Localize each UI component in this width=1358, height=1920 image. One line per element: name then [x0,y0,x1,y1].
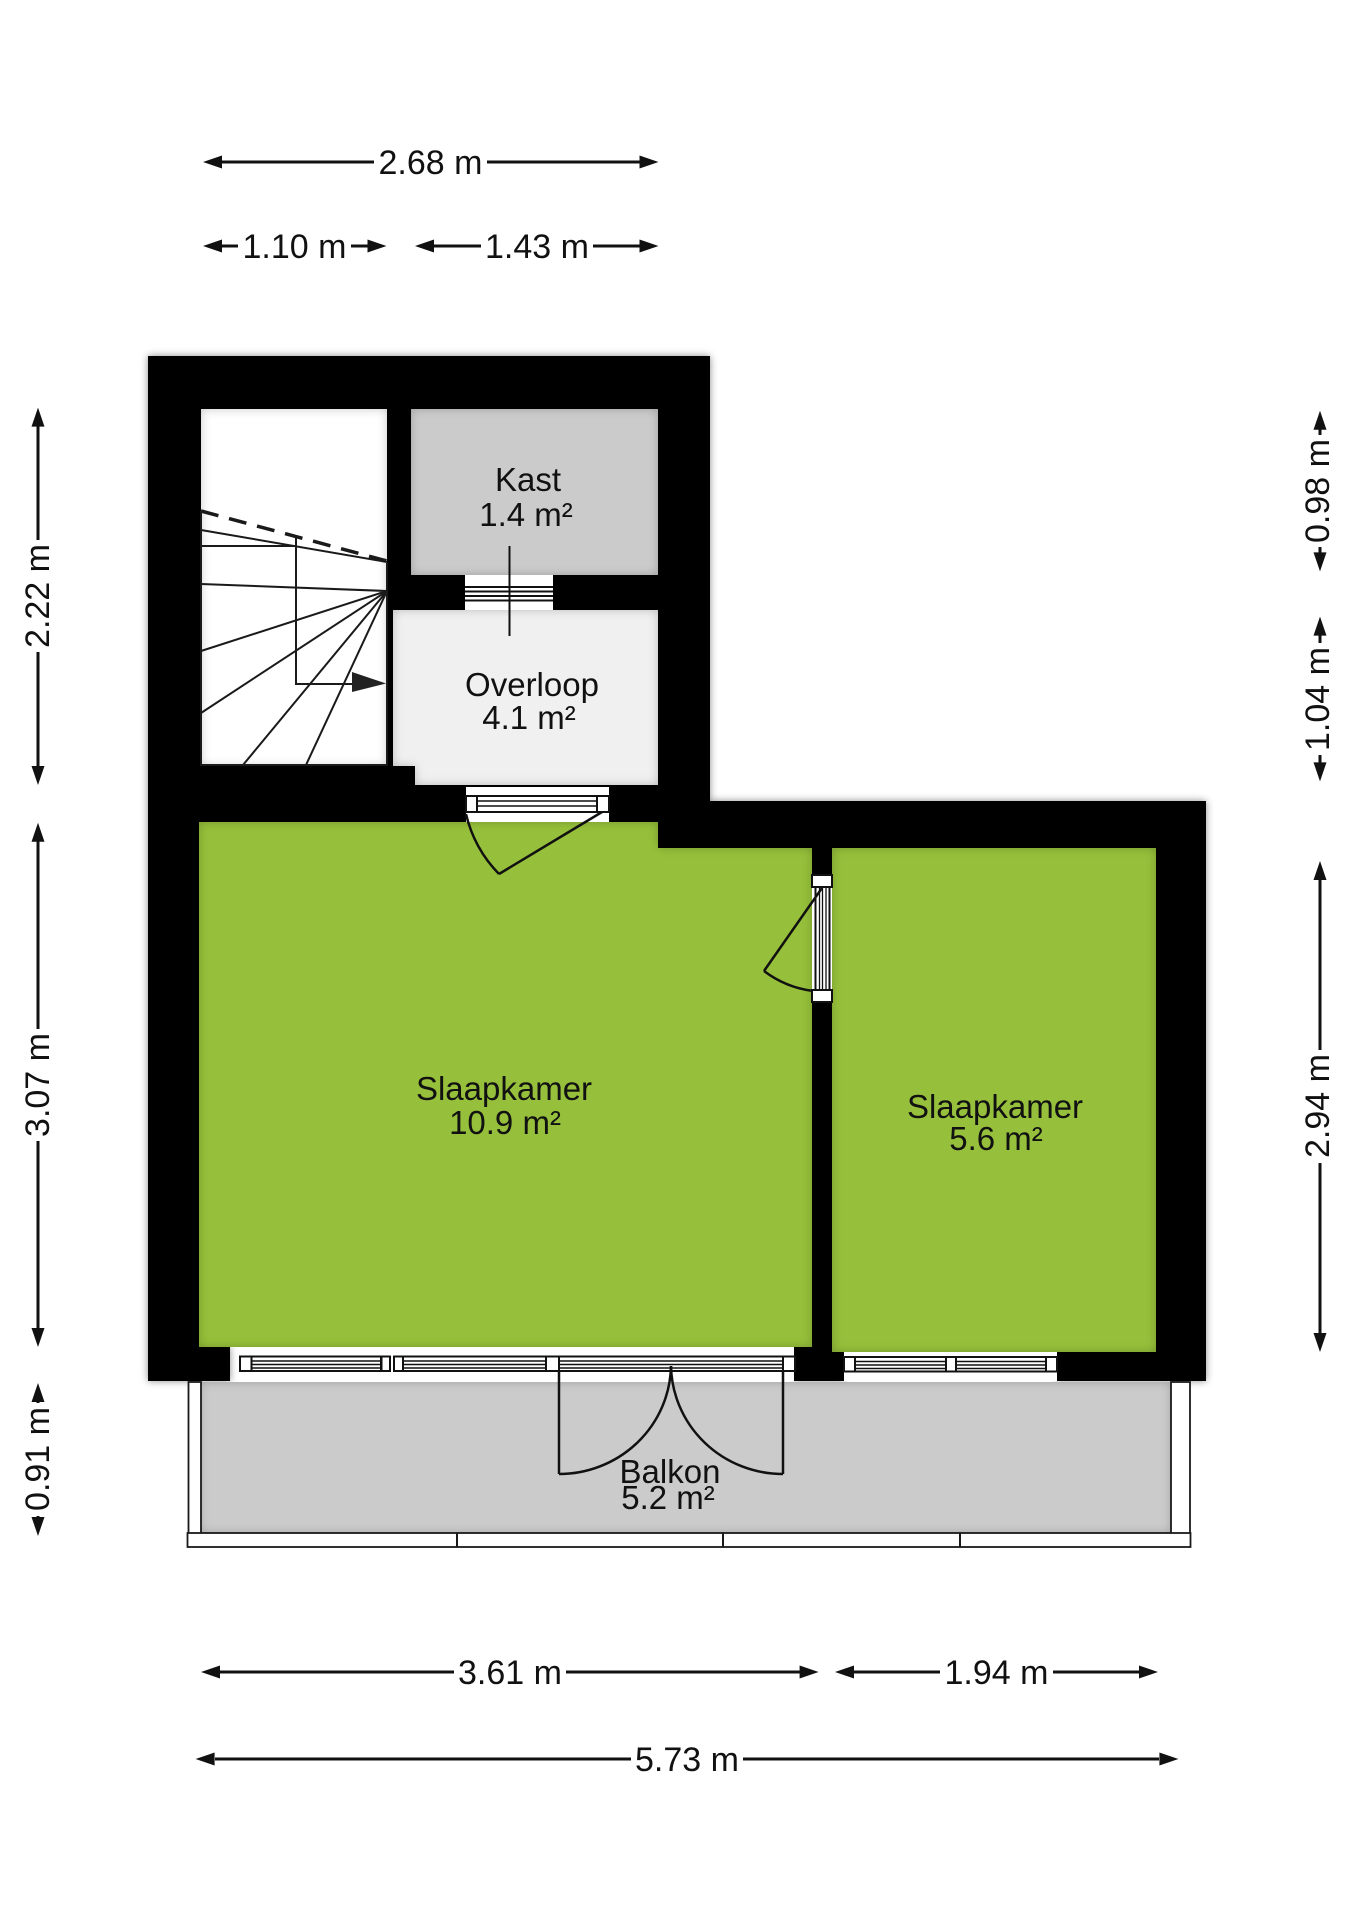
svg-text:3.07 m: 3.07 m [19,1033,57,1137]
svg-text:Slaapkamer: Slaapkamer [416,1070,592,1107]
svg-text:2.68 m: 2.68 m [379,144,483,182]
svg-text:2.22 m: 2.22 m [19,544,57,648]
svg-text:5.2 m²: 5.2 m² [621,1479,715,1516]
svg-text:1.43 m: 1.43 m [485,228,589,266]
svg-text:3.61 m: 3.61 m [458,1654,562,1692]
svg-text:0.98 m: 0.98 m [1299,439,1337,543]
svg-text:Overloop: Overloop [465,666,599,703]
svg-text:1.94 m: 1.94 m [945,1654,1049,1692]
svg-text:5.73 m: 5.73 m [635,1741,739,1779]
svg-text:4.1 m²: 4.1 m² [482,699,576,736]
svg-text:5.6 m²: 5.6 m² [949,1120,1043,1157]
svg-text:1.04 m: 1.04 m [1299,647,1337,751]
svg-text:Kast: Kast [495,461,561,498]
svg-text:1.4 m²: 1.4 m² [479,496,573,533]
svg-text:10.9 m²: 10.9 m² [449,1104,561,1141]
svg-text:0.91 m: 0.91 m [19,1407,57,1511]
svg-text:2.94 m: 2.94 m [1299,1054,1337,1158]
svg-text:1.10 m: 1.10 m [243,228,347,266]
